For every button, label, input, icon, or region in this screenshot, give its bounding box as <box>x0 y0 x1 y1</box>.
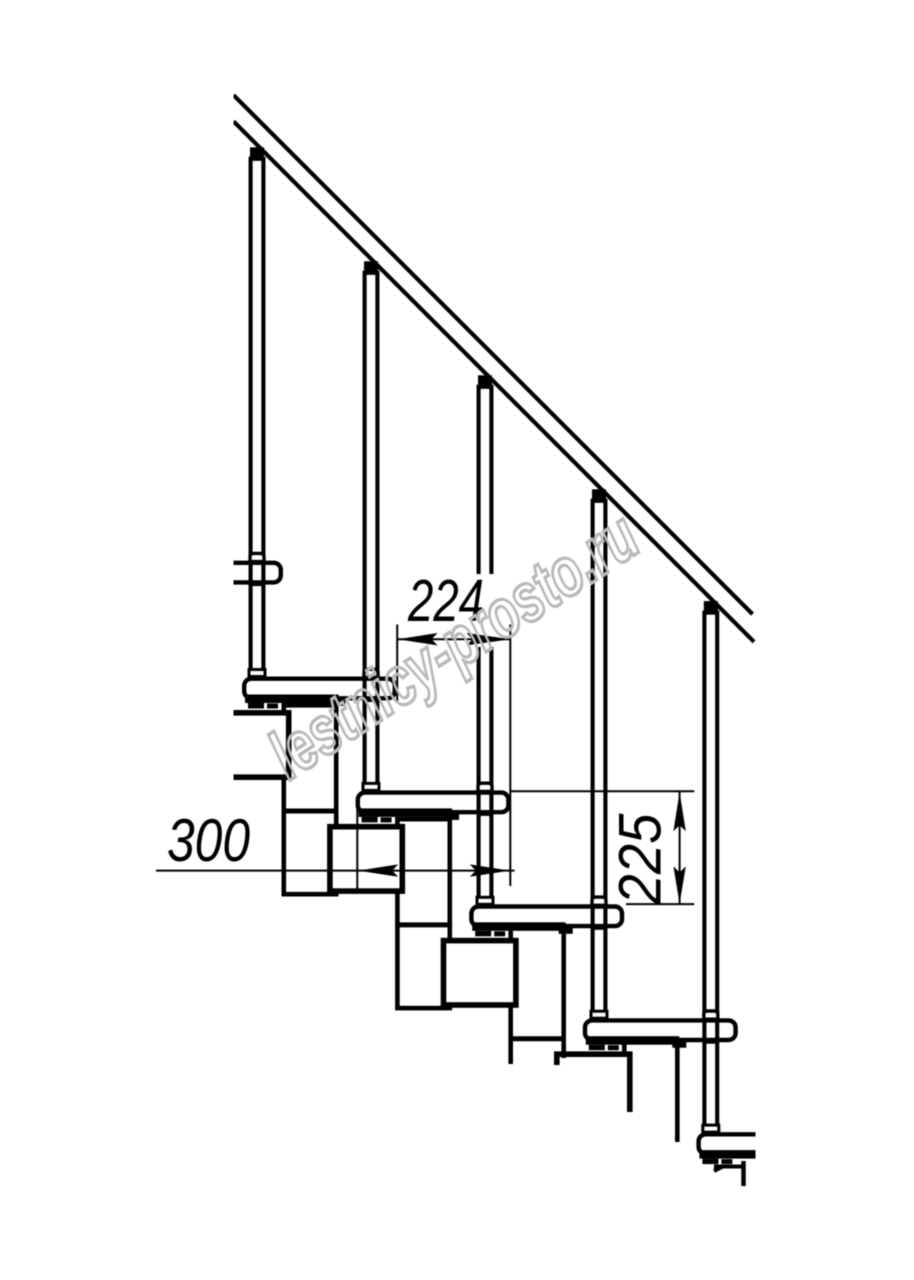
svg-text:225: 225 <box>607 813 674 905</box>
svg-text:300: 300 <box>167 807 250 874</box>
